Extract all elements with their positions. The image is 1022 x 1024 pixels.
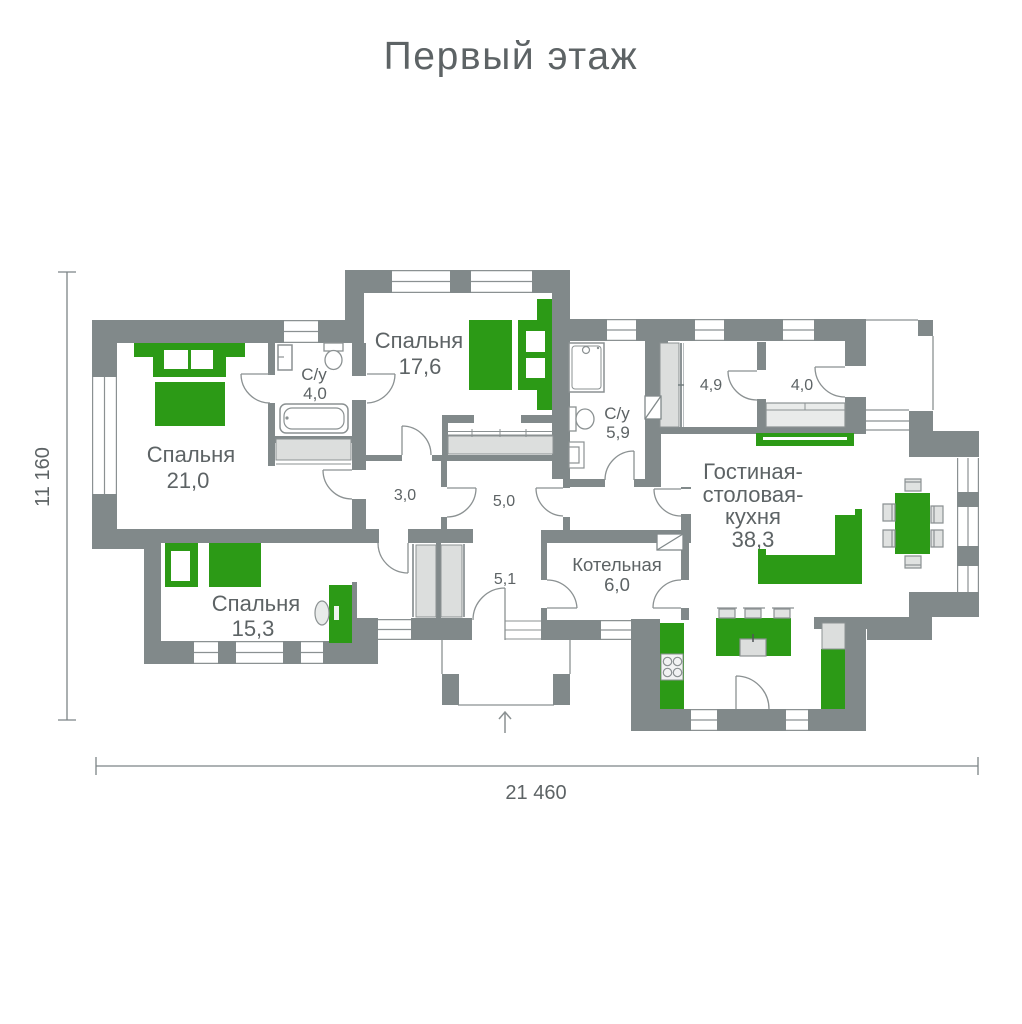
svg-text:21,0: 21,0 — [167, 468, 210, 493]
svg-text:Спальня: Спальня — [147, 442, 235, 467]
svg-text:11 160: 11 160 — [32, 447, 54, 507]
svg-text:3,0: 3,0 — [394, 487, 416, 504]
svg-text:5,0: 5,0 — [493, 493, 515, 510]
svg-text:38,3: 38,3 — [732, 527, 775, 552]
svg-text:Спальня: Спальня — [375, 328, 463, 353]
svg-text:4,0: 4,0 — [791, 377, 813, 394]
svg-text:С/у: С/у — [301, 365, 327, 384]
svg-text:кухня: кухня — [725, 504, 781, 529]
svg-text:6,0: 6,0 — [604, 574, 630, 595]
svg-text:21 460: 21 460 — [505, 782, 566, 804]
svg-text:4,9: 4,9 — [700, 377, 722, 394]
svg-text:Первый этаж: Первый этаж — [384, 35, 639, 78]
svg-text:Гостиная-: Гостиная- — [703, 459, 803, 484]
svg-text:4,0: 4,0 — [303, 384, 327, 403]
svg-text:5,9: 5,9 — [606, 423, 630, 442]
svg-text:5,1: 5,1 — [494, 571, 516, 588]
svg-text:С/у: С/у — [604, 404, 630, 423]
svg-text:Спальня: Спальня — [212, 591, 300, 616]
svg-text:17,6: 17,6 — [399, 354, 442, 379]
svg-text:Котельная: Котельная — [572, 554, 662, 575]
svg-text:15,3: 15,3 — [232, 616, 275, 641]
